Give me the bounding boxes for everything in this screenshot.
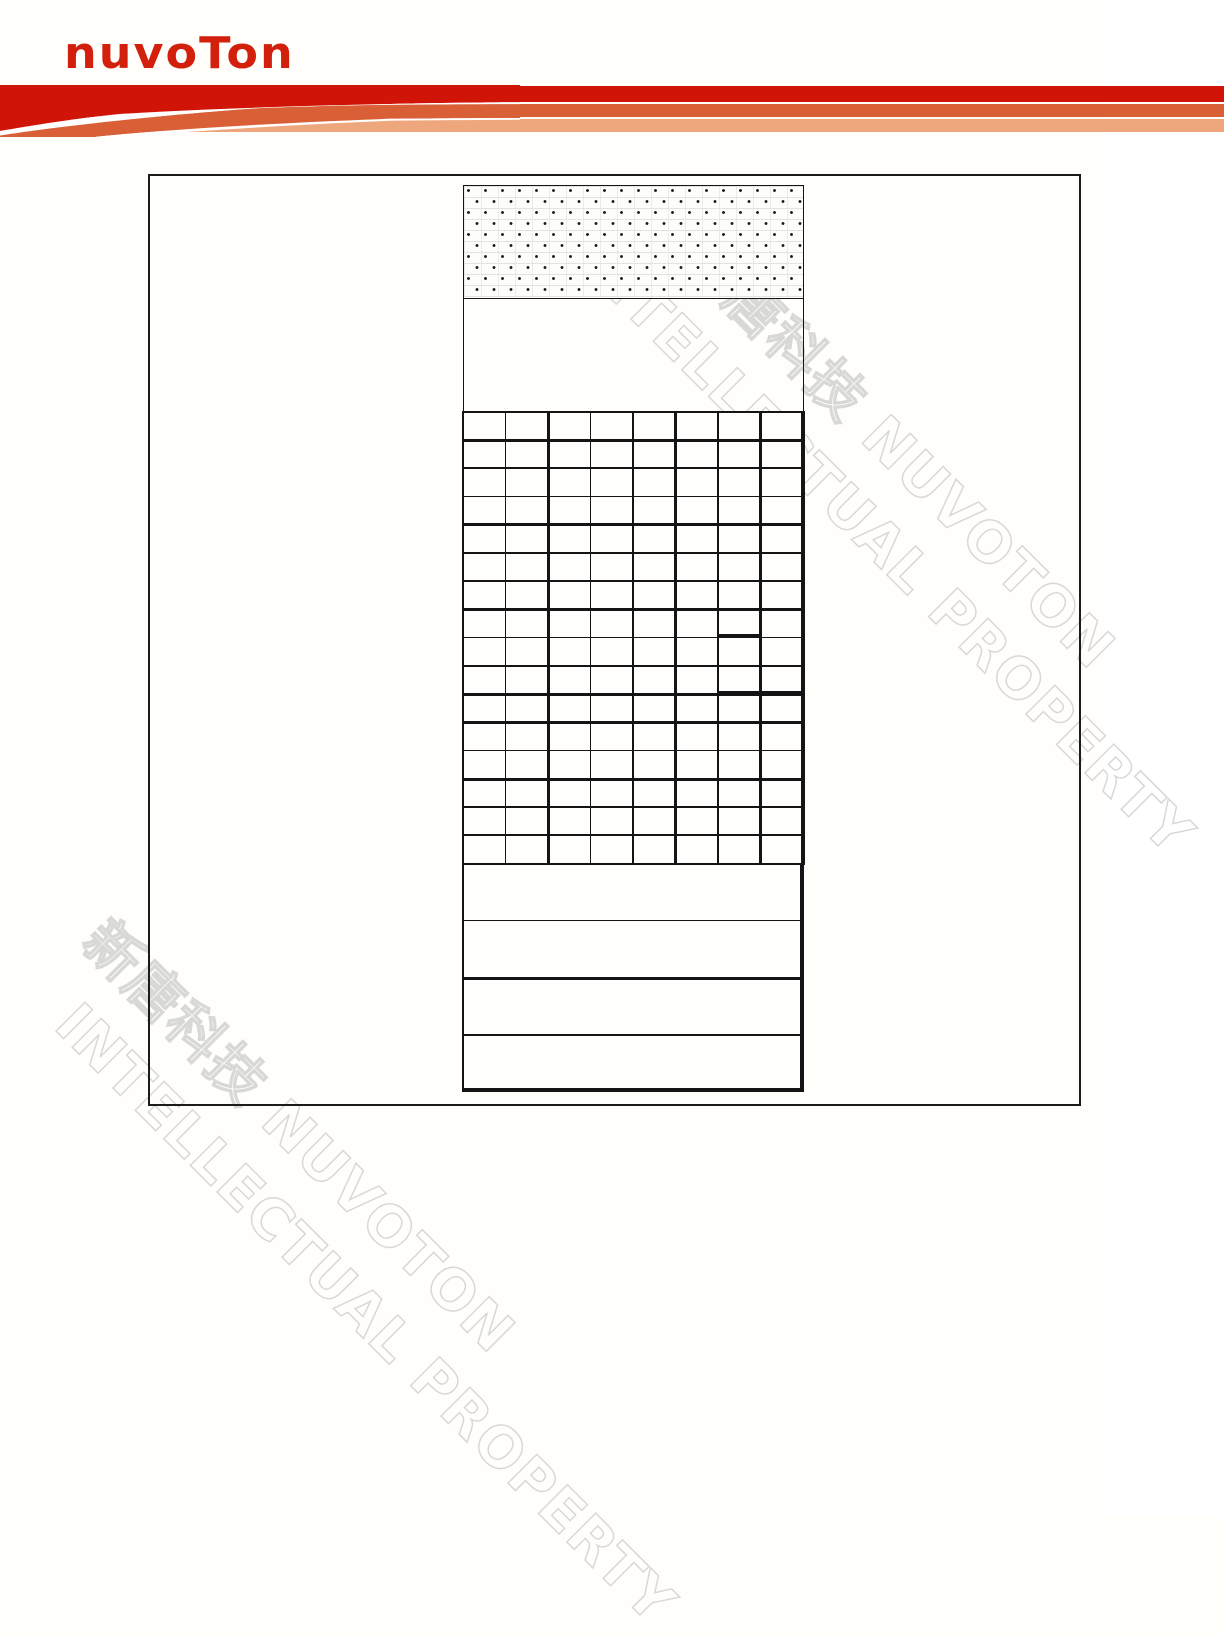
document-page: { "page": {"background": "#fffefa"}, "lo…: [0, 0, 1224, 1516]
nuvoton-logo: nuvoTon: [64, 27, 295, 78]
figure-outer-frame: [148, 174, 1081, 1106]
header-swoosh-graphic: [0, 85, 520, 137]
